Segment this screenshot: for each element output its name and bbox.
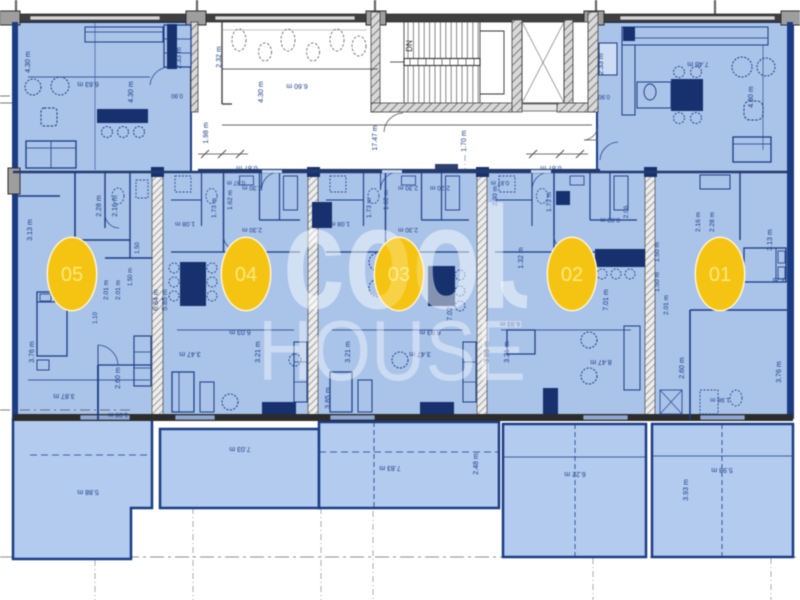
svg-text:1.70 m: 1.70 m [461, 130, 468, 152]
svg-text:3.13 m: 3.13 m [767, 229, 774, 251]
svg-text:3.47 m: 3.47 m [179, 350, 201, 357]
svg-text:3.87 m: 3.87 m [53, 392, 75, 399]
svg-text:3.23: 3.23 [772, 276, 785, 283]
svg-text:HOUSE: HOUSE [258, 304, 526, 399]
svg-text:2.33 m: 2.33 m [176, 47, 183, 69]
svg-text:3.93 m: 3.93 m [683, 479, 690, 501]
svg-text:2.32 m: 2.32 m [216, 46, 223, 68]
svg-text:0.90: 0.90 [598, 93, 610, 99]
svg-text:1.50 m: 1.50 m [654, 242, 661, 262]
svg-text:6.03 m: 6.03 m [229, 328, 251, 335]
svg-text:3.13 m: 3.13 m [27, 219, 34, 241]
svg-text:1.98 m: 1.98 m [710, 396, 730, 403]
svg-text:4.30 m: 4.30 m [128, 81, 135, 103]
svg-text:5.85 m: 5.85 m [162, 289, 169, 311]
svg-text:0.90: 0.90 [171, 92, 183, 98]
svg-text:7.83 m: 7.83 m [379, 464, 401, 471]
svg-text:2.01 m: 2.01 m [103, 280, 110, 300]
svg-text:2.48 m: 2.48 m [473, 453, 480, 475]
svg-text:1.50 m: 1.50 m [654, 272, 661, 292]
svg-text:1.50 m: 1.50 m [128, 268, 134, 286]
svg-text:5.88 m: 5.88 m [77, 488, 99, 495]
svg-text:0.87 m: 0.87 m [227, 179, 245, 185]
svg-text:2.16 m: 2.16 m [695, 212, 702, 232]
svg-text:1.62 m: 1.62 m [227, 190, 234, 210]
svg-text:1.08 m: 1.08 m [175, 220, 195, 227]
svg-text:2.33 m: 2.33 m [598, 53, 605, 75]
svg-text:17.47 m: 17.47 m [372, 125, 379, 150]
svg-text:4.30 m: 4.30 m [258, 81, 265, 103]
svg-text:1.73 m: 1.73 m [546, 192, 553, 212]
svg-text:6.63 m: 6.63 m [77, 80, 99, 87]
svg-text:1.32 m: 1.32 m [518, 247, 525, 269]
svg-text:4.30 m: 4.30 m [748, 86, 755, 108]
svg-text:0.82 m: 0.82 m [600, 216, 620, 223]
svg-text:6.84 m: 6.84 m [153, 289, 160, 311]
svg-text:01: 01 [709, 264, 731, 286]
svg-text:7.46 m: 7.46 m [687, 60, 709, 67]
svg-text:3.76 m: 3.76 m [776, 361, 783, 383]
svg-text:7.01 m: 7.01 m [603, 289, 610, 311]
svg-text:2.28 m: 2.28 m [709, 212, 716, 232]
svg-text:1.10: 1.10 [93, 312, 99, 324]
svg-text:1.73 m: 1.73 m [211, 198, 218, 218]
svg-text:1.98 m: 1.98 m [203, 122, 210, 144]
svg-text:3.76 m: 3.76 m [29, 341, 36, 363]
svg-text:2.60 m: 2.60 m [115, 367, 122, 389]
svg-text:2.60 m: 2.60 m [679, 357, 686, 379]
svg-text:2.01 m: 2.01 m [115, 280, 122, 300]
svg-text:6.60 m: 6.60 m [286, 82, 308, 89]
svg-text:02: 02 [561, 264, 583, 286]
svg-text:05: 05 [61, 264, 83, 286]
svg-text:2.28 m: 2.28 m [96, 195, 103, 217]
svg-text:2.16 m: 2.16 m [112, 195, 119, 217]
svg-text:04: 04 [235, 264, 257, 286]
svg-text:1.50: 1.50 [135, 242, 141, 254]
svg-text:2.01 m: 2.01 m [663, 295, 670, 315]
svg-text:2.30 m: 2.30 m [242, 226, 262, 233]
svg-text:DN: DN [405, 40, 414, 52]
svg-text:4.30 m: 4.30 m [25, 51, 32, 73]
svg-text:8.47 m: 8.47 m [590, 358, 612, 365]
svg-text:1.98 m: 1.98 m [108, 411, 128, 418]
svg-text:2.06: 2.06 [623, 205, 630, 218]
svg-text:7.03 m: 7.03 m [229, 445, 251, 452]
